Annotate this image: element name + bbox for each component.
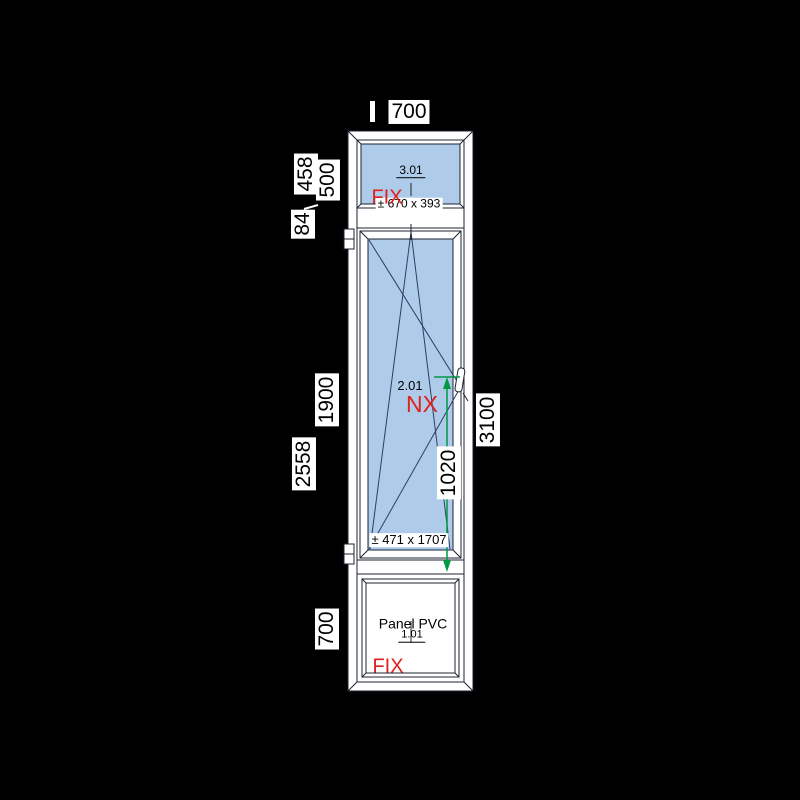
hinge-top <box>344 229 354 249</box>
dim-left-700: 700 <box>315 608 339 649</box>
opening-type-middle: NX <box>405 392 439 416</box>
section-size-middle: ± 471 x 1707 <box>369 533 448 547</box>
opening-type-top: FIX <box>370 188 403 209</box>
section-code-bottom: 1.01 <box>398 630 425 643</box>
dim-left-458: 458 <box>294 153 318 194</box>
dim-left-84: 84 <box>291 209 315 238</box>
dim-handle-1020: 1020 <box>437 447 461 500</box>
opening-type-bottom: FIX <box>371 657 404 678</box>
dim-left-500: 500 <box>316 159 340 200</box>
dim-left-1900: 1900 <box>315 374 339 427</box>
dim-right-3100: 3100 <box>476 394 500 447</box>
drawing-canvas: { "colors": { "background": "#000000", "… <box>0 0 800 800</box>
hinge-bottom <box>344 544 354 564</box>
section-code-top: 3.01 <box>396 164 425 178</box>
dim-width-top: 700 <box>388 100 429 124</box>
dim-left-2558: 2558 <box>292 438 316 491</box>
dim-tick-mark <box>370 101 375 122</box>
